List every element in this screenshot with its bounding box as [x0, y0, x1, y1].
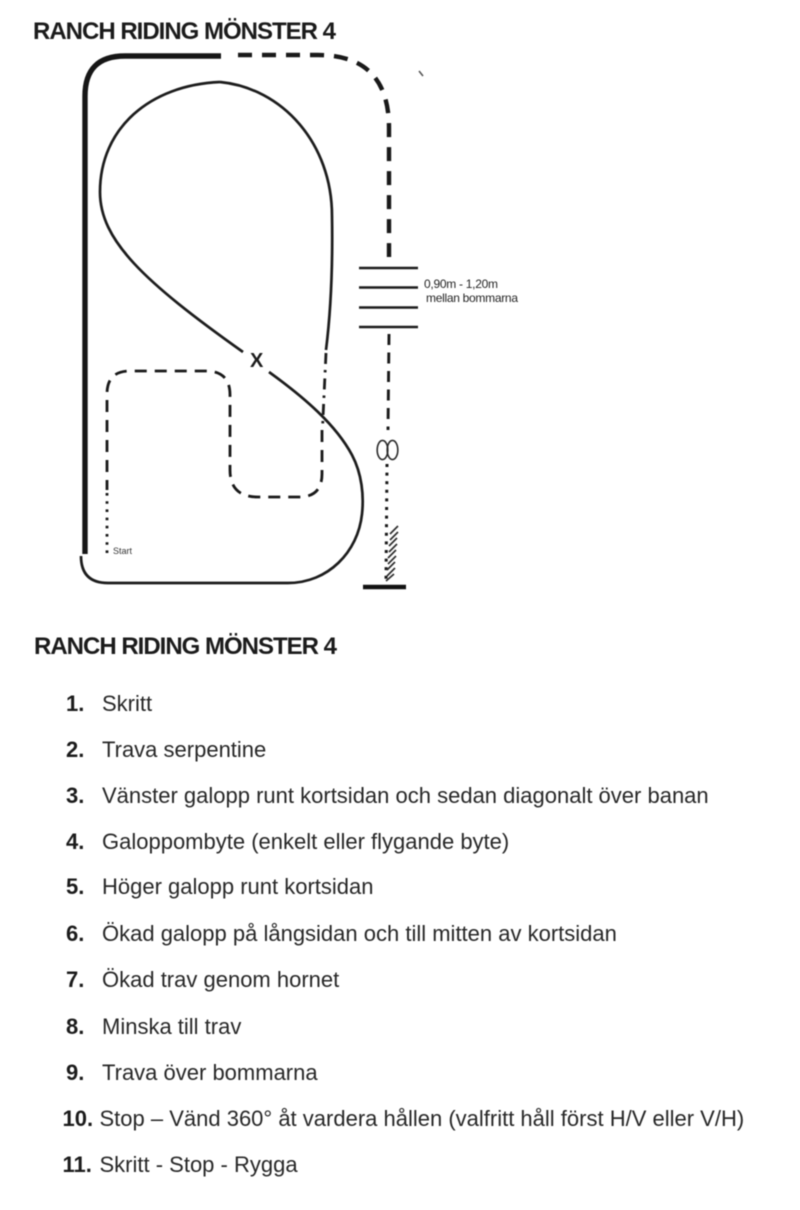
svg-text:mellan bommarna: mellan bommarna [426, 291, 518, 305]
svg-text:X: X [250, 350, 264, 372]
svg-text:0,90m - 1,20m: 0,90m - 1,20m [424, 277, 498, 291]
svg-text:Start: Start [113, 546, 133, 556]
